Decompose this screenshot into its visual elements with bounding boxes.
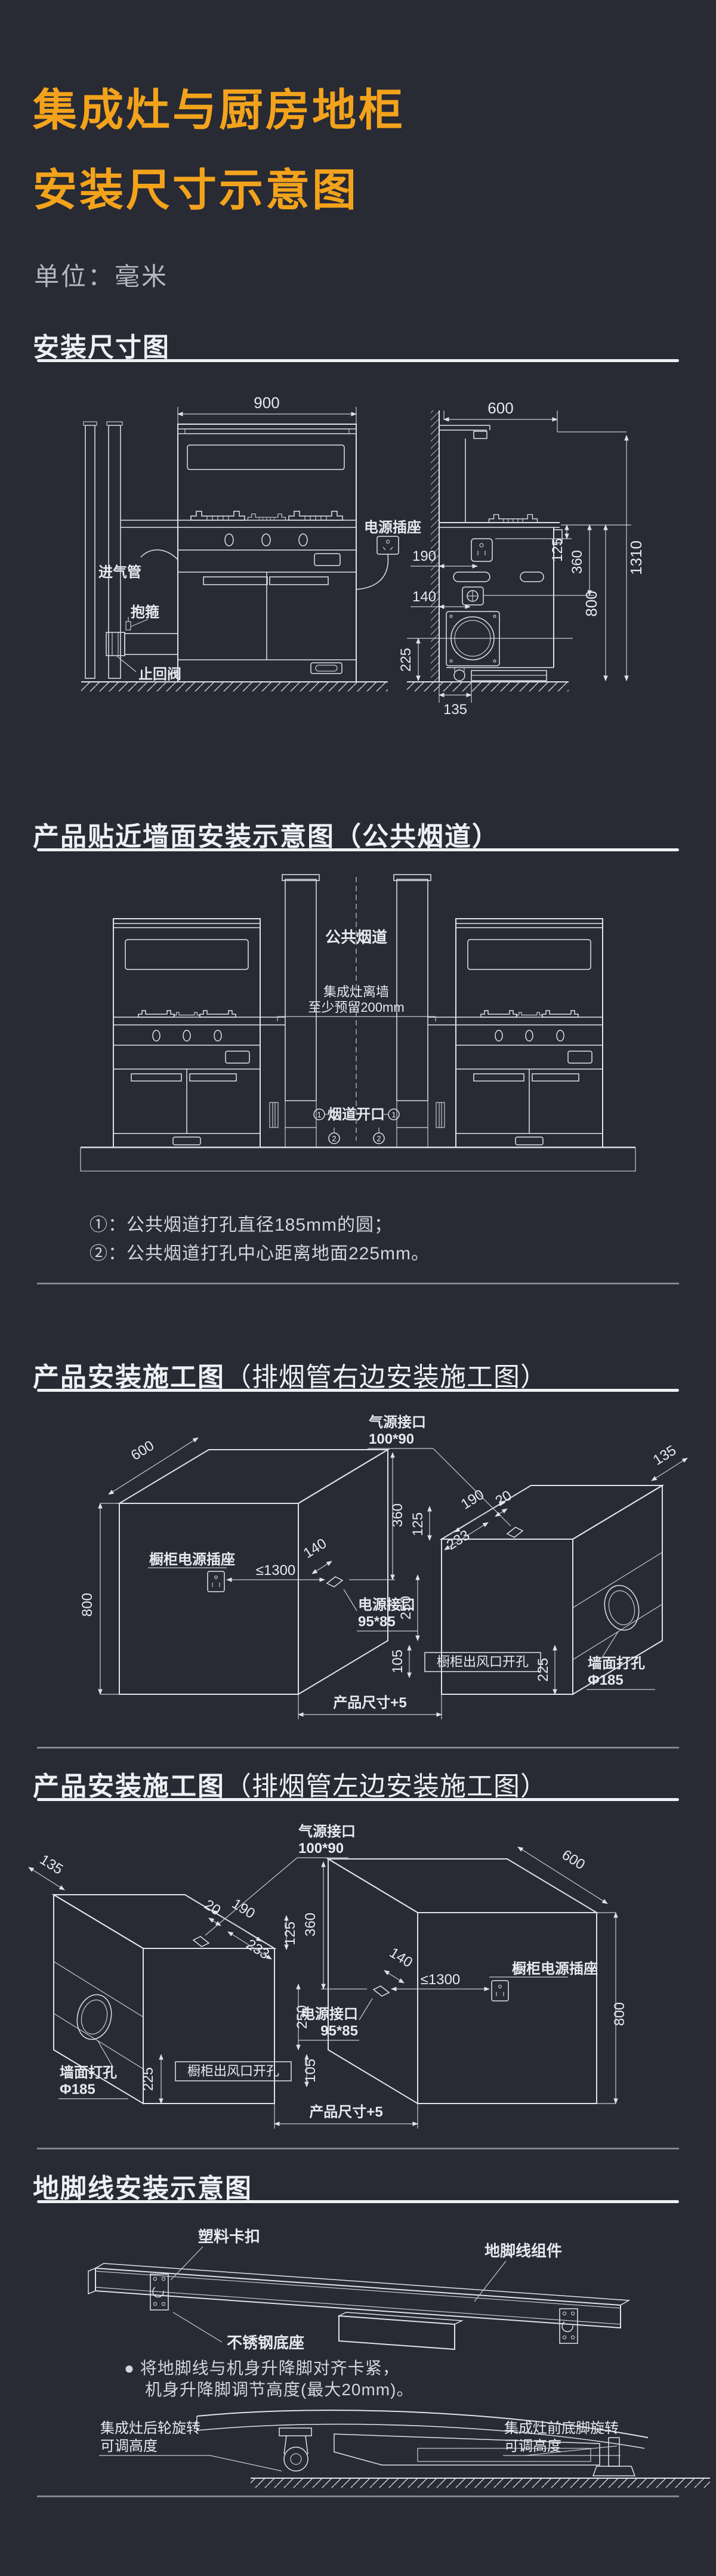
wall-gap-label-2: 至少预留200mm bbox=[308, 1000, 404, 1015]
socket-icon bbox=[208, 1571, 224, 1592]
divider bbox=[37, 1747, 679, 1749]
divider bbox=[37, 2148, 679, 2149]
section3-underline bbox=[37, 1389, 679, 1392]
dim-135: 135 bbox=[443, 702, 467, 717]
dim-800: 800 bbox=[612, 2002, 628, 2026]
section2-title: 产品贴近墙面安装示意图（公共烟道） bbox=[33, 815, 499, 853]
socket-label: 电源插座 bbox=[364, 519, 421, 536]
wall-hole-label-2: Φ185 bbox=[588, 1672, 624, 1688]
marker-2-text: 2 bbox=[332, 1134, 336, 1143]
leveling-feet-drawing: 集成灶后轮旋转 可调高度 集成灶前底脚旋转 可调高度 bbox=[0, 2399, 716, 2492]
dim-225: 225 bbox=[140, 2067, 156, 2091]
ground-hatch bbox=[81, 682, 569, 691]
dim-600: 600 bbox=[487, 399, 513, 417]
unit-label: 单位：毫米 bbox=[34, 257, 168, 293]
product-gap-dim: 产品尺寸+5 bbox=[274, 2104, 418, 2129]
dim-360: 360 bbox=[303, 1913, 319, 1936]
dim-140: 140 bbox=[301, 1536, 329, 1562]
wall-gap-label-1: 集成灶离墙 bbox=[323, 984, 389, 999]
marker-1-text: 1 bbox=[317, 1110, 321, 1119]
wall-hole-label-2: Φ185 bbox=[60, 2081, 95, 2098]
divider bbox=[37, 2495, 679, 2497]
wall-hole-circle bbox=[600, 1582, 644, 1633]
cabinet-socket-label: 橱柜电源插座 bbox=[149, 1551, 235, 1568]
gas-flue-pipes bbox=[84, 422, 122, 678]
dim-1300: ≤1300 bbox=[421, 1972, 461, 1988]
dim-135: 135 bbox=[37, 1852, 66, 1878]
product-dim-label: 产品尺寸+5 bbox=[333, 1694, 406, 1711]
section4-title: 产品安装施工图（排烟管左边安装施工图） bbox=[33, 1765, 547, 1803]
dim-135: 135 bbox=[650, 1443, 679, 1469]
gas-port bbox=[507, 1527, 523, 1537]
page-title-line2: 安装尺寸示意图 bbox=[33, 150, 405, 230]
section1-title: 安装尺寸图 bbox=[33, 326, 170, 364]
stove-front-view: 900 bbox=[178, 394, 356, 682]
common-flue-label: 公共烟道 bbox=[325, 928, 387, 946]
gas-port-label-1: 气源接口 bbox=[298, 1823, 356, 1840]
ground-hatch bbox=[81, 1147, 635, 1171]
dim-125: 125 bbox=[550, 538, 566, 562]
section4-title-main: 产品安装施工图 bbox=[33, 1772, 225, 1801]
right-clip-plate bbox=[560, 2309, 578, 2343]
lift-foot-block bbox=[339, 2312, 462, 2349]
section1-underline bbox=[37, 359, 679, 362]
page: { "colors": { "background": "#282a34", "… bbox=[0, 0, 716, 2576]
page-title-line1: 集成灶与厨房地柜 bbox=[33, 70, 405, 150]
section3-title-main: 产品安装施工图 bbox=[33, 1363, 225, 1392]
dim-800: 800 bbox=[79, 1593, 95, 1617]
section4-title-sub: （排烟管左边安装施工图） bbox=[225, 1772, 547, 1801]
product-gap-dim: 产品尺寸+5 bbox=[298, 1694, 442, 1719]
section5-title: 地脚线安装示意图 bbox=[33, 2167, 252, 2205]
dim-140: 140 bbox=[387, 1945, 415, 1971]
left-duct-box: 气源接口 100*90 190 125 233 20 135 250 105 橱… bbox=[29, 1823, 356, 2104]
install-drawing-left: 气源接口 100*90 190 125 233 20 135 250 105 橱… bbox=[0, 1811, 716, 2133]
ground-hatch bbox=[251, 2478, 710, 2488]
marker-1-text: 1 bbox=[391, 1110, 396, 1119]
rear-wheel-label-2: 可调高度 bbox=[100, 2438, 158, 2454]
marker-2-text: 2 bbox=[376, 1134, 381, 1143]
dim-190: 190 bbox=[229, 1896, 258, 1922]
front-foot-label-2: 可调高度 bbox=[504, 2438, 561, 2454]
section3-title-sub: （排烟管右边安装施工图） bbox=[225, 1363, 547, 1392]
stove-underside bbox=[197, 2410, 648, 2465]
page-title: 集成灶与厨房地柜 安装尺寸示意图 bbox=[33, 70, 405, 230]
check-valve-label: 止回阀 bbox=[138, 666, 181, 682]
dim-105: 105 bbox=[303, 2059, 319, 2083]
gas-port bbox=[193, 1936, 209, 1947]
dim-233: 233 bbox=[243, 1936, 272, 1963]
right-duct-box: 气源接口 100*90 190 125 233 20 135 250 105 橱… bbox=[368, 1414, 687, 1694]
gas-inlet-assembly: 进气管 抱箍 止回阀 bbox=[98, 520, 181, 682]
power-port bbox=[327, 1577, 342, 1587]
power-port-label-2: 95*85 bbox=[320, 2023, 358, 2039]
dim-1300: ≤1300 bbox=[256, 1562, 296, 1579]
common-flue-drawing: 公共烟道 集成灶离墙 至少预留200mm 1 1 烟道开口 2 2 bbox=[0, 871, 716, 1181]
stove-side-view: 600 bbox=[407, 399, 626, 682]
section5-underline bbox=[37, 2200, 679, 2203]
dim-1310: 1310 bbox=[627, 540, 645, 575]
outlet-label: 橱柜出风口开孔 bbox=[437, 1654, 529, 1669]
dim-233: 233 bbox=[444, 1527, 473, 1553]
assembly-label: 地脚线组件 bbox=[484, 2242, 562, 2260]
dim-900: 900 bbox=[254, 394, 279, 412]
dim-105: 105 bbox=[390, 1650, 406, 1673]
wall-hole-circle bbox=[73, 1991, 116, 2043]
baseboard-note-line2: 机身升降脚调节高度(最大20mm)。 bbox=[145, 2377, 413, 2401]
rear-wheel-label-1: 集成灶后轮旋转 bbox=[100, 2420, 200, 2436]
clamp-label: 抱箍 bbox=[131, 604, 159, 620]
flue-note-1: ①：公共烟道打孔直径185mm的圆； bbox=[89, 1210, 393, 1236]
gas-port-label-2: 100*90 bbox=[298, 1840, 344, 1857]
section3-title: 产品安装施工图（排烟管右边安装施工图） bbox=[33, 1355, 547, 1394]
rear-caster-wheel bbox=[279, 2428, 311, 2471]
dim-125: 125 bbox=[410, 1512, 426, 1536]
power-port-label-1: 电源接口 bbox=[301, 2006, 358, 2022]
dim-360: 360 bbox=[569, 550, 585, 574]
baseboard-note-text1: 将地脚线与机身升降脚对齐卡紧， bbox=[140, 2359, 400, 2377]
dim-250: 250 bbox=[398, 1596, 414, 1620]
section2-underline bbox=[37, 848, 679, 851]
left-stove bbox=[113, 919, 260, 1147]
dim-600: 600 bbox=[128, 1438, 157, 1464]
power-socket: 电源插座 bbox=[357, 519, 421, 589]
dim-800: 800 bbox=[582, 591, 600, 616]
section4-underline bbox=[37, 1798, 679, 1801]
socket-icon bbox=[377, 536, 399, 554]
wall-hole-label-1: 墙面打孔 bbox=[588, 1655, 645, 1672]
flue-opening: 1 1 烟道开口 2 2 bbox=[270, 1101, 445, 1147]
baseboard-note-line1: ● 将地脚线与机身升降脚对齐卡紧， bbox=[124, 2355, 400, 2379]
dim-125: 125 bbox=[282, 1922, 298, 1945]
bullet-icon: ● bbox=[124, 2359, 135, 2377]
power-port bbox=[374, 1986, 389, 1996]
gas-pipe-label: 进气管 bbox=[98, 564, 141, 580]
dimension-drawing: 900 进气管 抱箍 止回阀 bbox=[0, 371, 716, 717]
divider bbox=[37, 1283, 679, 1284]
baseboard-bar bbox=[88, 2263, 629, 2328]
dim-600: 600 bbox=[559, 1847, 588, 1873]
wall-hole-label-1: 墙面打孔 bbox=[60, 2064, 117, 2081]
cabinet-socket-label: 橱柜电源插座 bbox=[512, 1960, 598, 1977]
gas-port-label-2: 100*90 bbox=[369, 1431, 414, 1447]
install-drawing-right: 600 800 360 橱柜电源插座 ≤1300 140 电源接口 95*85 … bbox=[0, 1402, 716, 1724]
right-stove bbox=[456, 919, 603, 1147]
baseboard-drawing: 塑料卡扣 地脚线组件 不锈钢底座 bbox=[0, 2211, 716, 2353]
power-port-label-2: 95*85 bbox=[358, 1614, 396, 1630]
dim-225: 225 bbox=[535, 1658, 551, 1682]
left-cabinet-box: 600 800 360 橱柜电源插座 ≤1300 140 电源接口 95*85 bbox=[79, 1438, 418, 1694]
gas-port-label-1: 气源接口 bbox=[368, 1414, 426, 1431]
outlet-label: 橱柜出风口开孔 bbox=[187, 2064, 279, 2078]
dim-225: 225 bbox=[398, 648, 414, 672]
plastic-clip-label: 塑料卡扣 bbox=[198, 2228, 260, 2245]
dim-360: 360 bbox=[390, 1503, 406, 1527]
right-cabinet-box: 600 800 360 橱柜电源插座 ≤1300 140 电源接口 95*85 bbox=[298, 1847, 628, 2104]
dim-190: 190 bbox=[458, 1487, 487, 1513]
socket-icon bbox=[492, 1981, 508, 2001]
flue-opening-label: 烟道开口 bbox=[328, 1106, 385, 1123]
steel-base-label: 不锈钢底座 bbox=[227, 2334, 304, 2352]
dim-140: 140 bbox=[412, 589, 436, 605]
product-dim-label: 产品尺寸+5 bbox=[309, 2104, 382, 2120]
dim-190: 190 bbox=[412, 548, 436, 564]
front-foot-label-1: 集成灶前底脚旋转 bbox=[504, 2420, 619, 2436]
flue-note-2: ②：公共烟道打孔中心距离地面225mm。 bbox=[89, 1238, 430, 1265]
